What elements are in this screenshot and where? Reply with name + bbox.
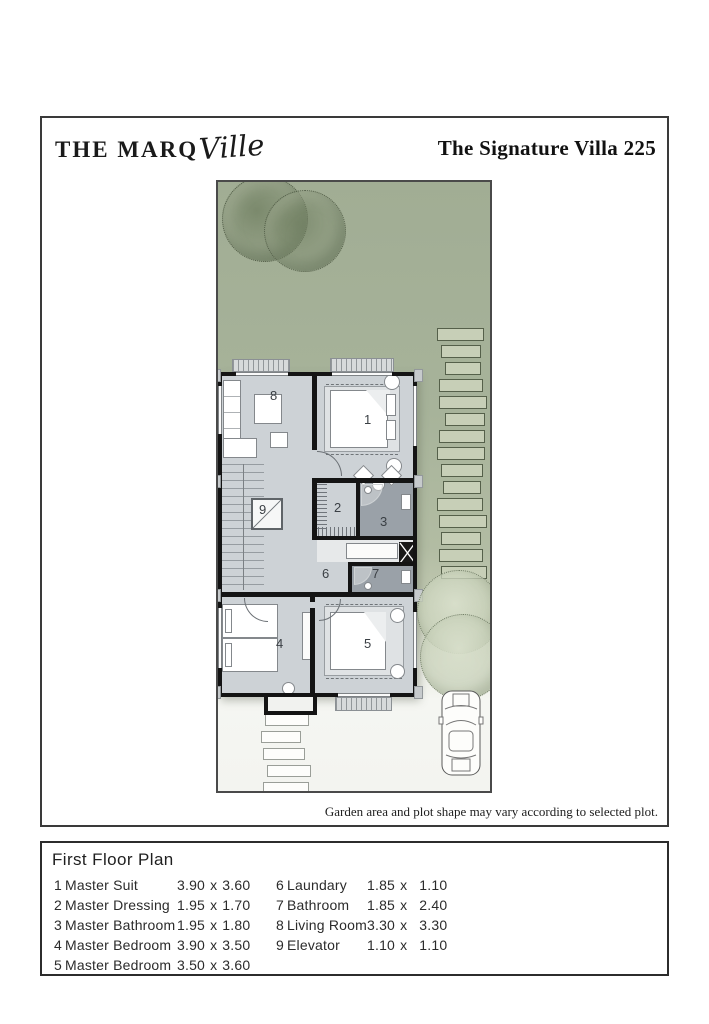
room-number-label: 1 (364, 412, 371, 427)
room-name: Master Bedroom (65, 957, 177, 973)
room-number: 2 (54, 897, 62, 913)
site-plan: 123456789 (216, 180, 492, 793)
stepping-stone (439, 430, 485, 443)
dim-width: 3.30 (367, 917, 395, 933)
room-number-label: 9 (259, 502, 266, 517)
stepping-stone (265, 714, 309, 726)
dim-width: 1.95 (177, 897, 205, 913)
plan-disclaimer: Garden area and plot shape may vary acco… (325, 804, 658, 820)
room-name: Bathroom (287, 897, 367, 913)
room-number-label: 7 (372, 566, 379, 581)
window (413, 386, 417, 446)
room-number-label: 6 (322, 566, 329, 581)
window (218, 386, 222, 434)
room-name: Living Room (287, 917, 367, 933)
stepping-stone (267, 765, 311, 777)
exterior-wall (218, 372, 417, 697)
stepping-stone (439, 379, 483, 392)
dim-height: 1.70 (222, 897, 250, 913)
stepping-stone (261, 731, 301, 743)
legend-item: 7Bathroom1.85x2.40 (276, 895, 447, 915)
stepping-stone (263, 782, 309, 793)
room-name: Master Bathroom (65, 917, 177, 933)
legend-item: 1Master Suit3.90x3.60 (54, 875, 250, 895)
dim-width: 3.50 (177, 957, 205, 973)
terrace (335, 697, 392, 711)
stepping-stone (437, 447, 485, 460)
dim-width: 3.90 (177, 937, 205, 953)
stepping-stone (437, 328, 484, 341)
dim-height: 1.10 (419, 937, 447, 953)
legend-title: First Floor Plan (52, 850, 174, 870)
brand-script: Ville (198, 128, 266, 166)
dim-height: 2.40 (419, 897, 447, 913)
window (218, 608, 222, 668)
legend-item: 2Master Dressing1.95x1.70 (54, 895, 250, 915)
room-name: Elevator (287, 937, 367, 953)
legend-item: 8Living Room3.30x3.30 (276, 915, 447, 935)
pilaster (216, 475, 221, 488)
dim-separator: x (210, 917, 217, 933)
room-number: 9 (276, 937, 284, 953)
plan-sheet: THE MARQVille The Signature Villa 225 (40, 116, 669, 827)
dim-width: 1.10 (367, 937, 395, 953)
terrace (330, 358, 394, 372)
room-number-label: 8 (270, 388, 277, 403)
window (413, 612, 417, 668)
tree-icon (264, 190, 346, 272)
pilaster (414, 686, 423, 699)
dim-height: 3.30 (419, 917, 447, 933)
pilaster (414, 475, 423, 488)
stepping-stone (437, 498, 483, 511)
window (332, 372, 392, 376)
stepping-stone (439, 515, 487, 528)
stepping-stone (443, 481, 481, 494)
room-number: 5 (54, 957, 62, 973)
room-number: 7 (276, 897, 284, 913)
stepping-stone (441, 464, 483, 477)
page-title: The Signature Villa 225 (438, 136, 656, 161)
stepping-stone (445, 362, 481, 375)
dim-width: 1.85 (367, 897, 395, 913)
legend: First Floor Plan 1Master Suit3.90x3.602M… (40, 841, 669, 976)
dim-height: 1.80 (222, 917, 250, 933)
legend-column: 1Master Suit3.90x3.602Master Dressing1.9… (54, 875, 250, 975)
room-number-label: 3 (380, 514, 387, 529)
stepping-stone (441, 532, 481, 545)
room-name: Master Bedroom (65, 937, 177, 953)
pilaster (216, 686, 221, 699)
dim-height: 3.50 (222, 937, 250, 953)
car-icon (438, 687, 484, 779)
stepping-stone (439, 396, 487, 409)
stepping-stone (445, 413, 485, 426)
room-number-label: 5 (364, 636, 371, 651)
brand-name: THE MARQ (55, 137, 198, 162)
dim-height: 3.60 (222, 957, 250, 973)
dim-separator: x (400, 877, 407, 893)
room-number: 6 (276, 877, 284, 893)
legend-item: 3Master Bathroom1.95x1.80 (54, 915, 250, 935)
legend-item: 9Elevator1.10x1.10 (276, 935, 447, 955)
dim-width: 1.85 (367, 877, 395, 893)
dim-separator: x (400, 937, 407, 953)
room-number: 4 (54, 937, 62, 953)
stepping-stone (263, 748, 305, 760)
dim-height: 3.60 (222, 877, 250, 893)
entry-porch (264, 697, 317, 715)
villa-building: 123456789 (218, 372, 417, 697)
room-number: 8 (276, 917, 284, 933)
pilaster (414, 369, 423, 382)
dim-separator: x (400, 897, 407, 913)
pilaster (216, 369, 221, 382)
pilaster (216, 589, 221, 602)
legend-item: 4Master Bedroom3.90x3.50 (54, 935, 250, 955)
room-number: 1 (54, 877, 62, 893)
terrace (232, 359, 290, 372)
dim-width: 1.95 (177, 917, 205, 933)
stepping-stone (441, 345, 481, 358)
room-name: Master Dressing (65, 897, 177, 913)
dim-separator: x (210, 897, 217, 913)
room-number-label: 4 (276, 636, 283, 651)
legend-column: 6Laundary1.85x1.107Bathroom1.85x2.408Liv… (276, 875, 447, 955)
room-number: 3 (54, 917, 62, 933)
dim-width: 3.90 (177, 877, 205, 893)
dim-height: 1.10 (419, 877, 447, 893)
dim-separator: x (210, 937, 217, 953)
room-number-label: 2 (334, 500, 341, 515)
legend-item: 5Master Bedroom3.50x3.60 (54, 955, 250, 975)
dim-separator: x (210, 957, 217, 973)
dim-separator: x (210, 877, 217, 893)
dim-separator: x (400, 917, 407, 933)
stepping-stone (439, 549, 483, 562)
window (236, 372, 288, 376)
room-name: Master Suit (65, 877, 177, 893)
brand-logo: THE MARQVille (55, 130, 265, 164)
legend-item: 6Laundary1.85x1.10 (276, 875, 447, 895)
room-name: Laundary (287, 877, 367, 893)
